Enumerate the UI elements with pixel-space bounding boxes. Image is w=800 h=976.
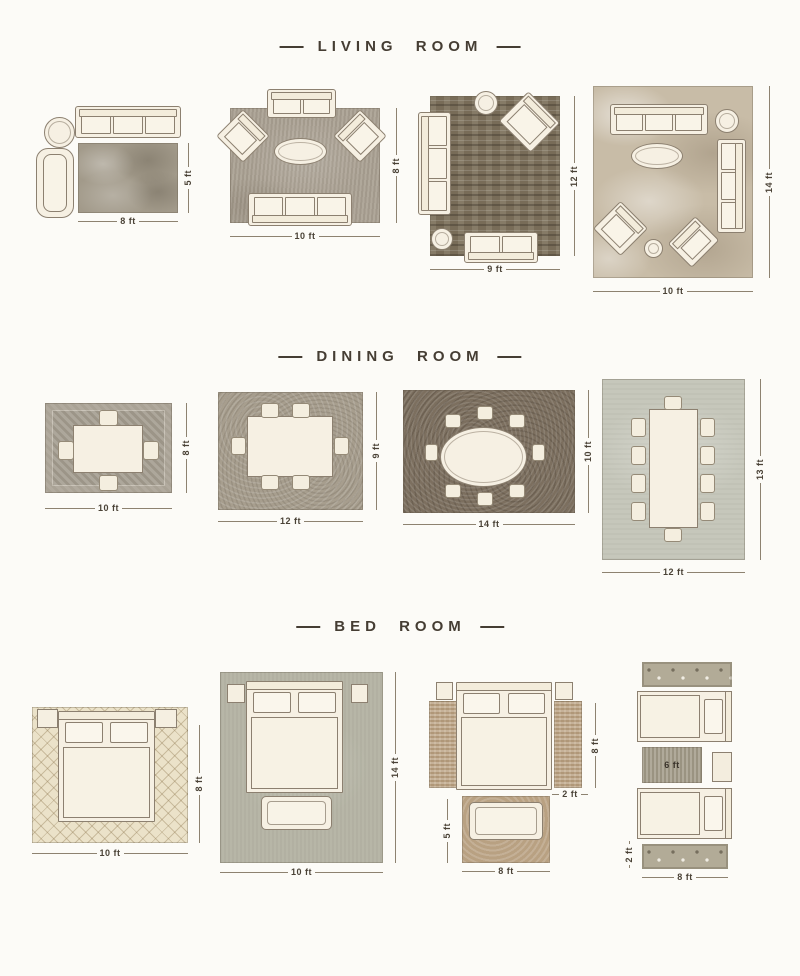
dim-height: 12 ft xyxy=(568,96,580,256)
dim-height: 5 ft xyxy=(182,143,194,213)
dining-chair xyxy=(664,396,682,410)
dim-label: 10 ft xyxy=(663,286,684,296)
bed xyxy=(456,682,552,790)
dim-label: 12 ft xyxy=(663,567,684,577)
dim-label: 5 ft xyxy=(183,170,193,186)
title-dash-left xyxy=(296,626,320,628)
side-table xyxy=(431,228,453,250)
dim-line xyxy=(552,794,559,795)
dim-foot-rug-height: 5 ft xyxy=(441,799,453,863)
dim-line xyxy=(395,781,396,863)
bench xyxy=(261,796,332,830)
dim-line xyxy=(593,291,660,292)
dim-label: 10 ft xyxy=(291,867,312,877)
dim-line xyxy=(315,872,383,873)
dim-line xyxy=(595,703,596,735)
dim-line xyxy=(122,508,172,509)
title-dash-left xyxy=(280,46,304,48)
dim-line xyxy=(595,756,596,788)
seat-cushion xyxy=(317,197,346,216)
seat-cushion xyxy=(616,114,643,131)
dim-runner-height: 8 ft xyxy=(589,703,601,788)
dim-width: 9 ft xyxy=(430,264,560,274)
dining-chair xyxy=(700,446,715,465)
dining-chair xyxy=(261,403,279,418)
dim-line xyxy=(230,236,292,237)
dim-width: 10 ft xyxy=(220,867,383,877)
seat-cushion xyxy=(273,99,301,114)
dim-line xyxy=(376,462,377,510)
dining-chair xyxy=(631,446,646,465)
dining-chair xyxy=(261,475,279,490)
dining-chair xyxy=(700,502,715,521)
bed xyxy=(246,681,343,793)
side-table xyxy=(474,91,498,115)
dim-line xyxy=(396,176,397,223)
dim-width: 10 ft xyxy=(593,286,753,296)
coffee-table xyxy=(631,143,683,169)
dim-label: 5 ft xyxy=(442,823,452,839)
dim-height: 13 ft xyxy=(754,379,766,560)
dim-label: 14 ft xyxy=(390,757,400,778)
dim-line xyxy=(769,196,770,279)
runner-rug xyxy=(642,662,732,687)
dim-label: 8 ft xyxy=(498,866,514,876)
seat-cushion xyxy=(303,99,331,114)
dim-line xyxy=(574,190,575,257)
dining-chair xyxy=(99,410,118,426)
dim-label: 2 ft xyxy=(624,847,634,863)
dim-label: 10 ft xyxy=(583,441,593,462)
living-room-title: LIVING ROOM xyxy=(280,38,521,55)
seat-cushion xyxy=(285,197,314,216)
dim-label: 2 ft xyxy=(562,789,578,799)
dim-line xyxy=(199,795,200,843)
sofa xyxy=(248,193,352,226)
nightstand xyxy=(555,682,573,700)
bed-room-title: BED ROOM xyxy=(296,618,504,635)
chaise-lounge xyxy=(36,148,74,218)
dim-line xyxy=(188,143,189,167)
dim-line xyxy=(687,572,745,573)
dim-line xyxy=(304,521,363,522)
seat-cushion xyxy=(721,172,736,199)
side-table xyxy=(715,109,739,133)
dim-width: 8 ft xyxy=(78,216,178,226)
rug-length-label: 6 ft xyxy=(664,760,680,770)
seat-cushion xyxy=(721,202,736,229)
sofa xyxy=(717,139,746,233)
seat-cushion xyxy=(645,114,672,131)
dim-width: 14 ft xyxy=(403,519,575,529)
dim-line xyxy=(506,269,560,270)
oval-dining-table xyxy=(440,427,527,487)
loveseat xyxy=(464,232,538,263)
pillow xyxy=(508,693,546,714)
dim-line xyxy=(581,794,588,795)
dim-label: 8 ft xyxy=(391,158,401,174)
sofa xyxy=(267,89,336,118)
dining-chair xyxy=(509,484,525,498)
dim-line xyxy=(220,872,288,873)
dim-width: 10 ft xyxy=(32,848,188,858)
seat-cushion xyxy=(470,236,500,253)
pillow xyxy=(704,699,723,734)
dining-table xyxy=(247,416,333,477)
dim-line xyxy=(588,465,589,513)
dim-width: 8 ft xyxy=(642,872,728,882)
dim-line xyxy=(396,108,397,155)
dining-chair xyxy=(631,502,646,521)
seat-cushion xyxy=(675,114,702,131)
runner-rug-between-beds: 6 ft xyxy=(642,747,702,783)
rug-size-guide: LIVING ROOM 5 ft 8 ft xyxy=(0,0,800,976)
dim-line xyxy=(403,524,476,525)
dim-line xyxy=(218,521,277,522)
dining-chair xyxy=(292,403,310,418)
dim-height: 8 ft xyxy=(390,108,402,223)
seat-cushion xyxy=(113,116,143,134)
dining-room-title: DINING ROOM xyxy=(278,348,521,365)
dim-height: 9 ft xyxy=(370,392,382,510)
dining-chair xyxy=(445,414,461,428)
dining-chair xyxy=(631,474,646,493)
pillow xyxy=(704,796,723,831)
dim-line xyxy=(430,269,484,270)
small-mat xyxy=(712,752,732,782)
pillow xyxy=(110,722,148,743)
dim-height: 8 ft xyxy=(193,725,205,843)
title-dash-right xyxy=(496,46,520,48)
dining-table xyxy=(73,425,143,473)
dining-chair xyxy=(99,475,118,491)
dim-label: 8 ft xyxy=(194,776,204,792)
dining-chair xyxy=(58,441,74,460)
dim-height: 10 ft xyxy=(582,390,594,513)
pillow xyxy=(463,693,501,714)
nightstand xyxy=(37,709,58,728)
nightstand xyxy=(351,684,368,703)
pillow xyxy=(298,692,336,713)
dim-line xyxy=(139,221,178,222)
dim-label: 10 ft xyxy=(100,848,121,858)
dim-width: 10 ft xyxy=(45,503,172,513)
dining-chair xyxy=(445,484,461,498)
dim-line xyxy=(199,725,200,773)
dim-line xyxy=(32,853,97,854)
bench xyxy=(469,802,543,840)
dim-label: 10 ft xyxy=(98,503,119,513)
title-dash-left xyxy=(278,356,302,358)
dining-chair xyxy=(292,475,310,490)
dim-line xyxy=(629,865,630,868)
dim-line xyxy=(376,392,377,440)
nightstand xyxy=(436,682,453,700)
nightstand xyxy=(227,684,245,703)
dim-label: 8 ft xyxy=(120,216,136,226)
dining-chair xyxy=(700,474,715,493)
seat-cushion xyxy=(428,181,447,211)
dim-line xyxy=(602,572,660,573)
seat-cushion xyxy=(721,143,736,170)
dim-line xyxy=(447,799,448,820)
seat-cushion xyxy=(81,116,111,134)
dining-chair xyxy=(509,414,525,428)
sofa xyxy=(610,104,708,135)
dim-label: 8 ft xyxy=(181,440,191,456)
seat-cushion xyxy=(428,148,447,178)
dim-label: 8 ft xyxy=(590,738,600,754)
dim-width: 12 ft xyxy=(218,516,363,526)
dim-line xyxy=(188,189,189,213)
dim-label: 12 ft xyxy=(569,166,579,187)
seat-cushion xyxy=(254,197,283,216)
dining-chair xyxy=(477,406,493,420)
runner-rug xyxy=(554,701,582,788)
coffee-table xyxy=(274,138,327,165)
dim-line xyxy=(462,871,495,872)
dim-label: 14 ft xyxy=(764,172,774,193)
dim-line xyxy=(186,403,187,437)
dining-chair xyxy=(334,437,349,455)
dining-table xyxy=(649,409,698,528)
dining-chair xyxy=(143,441,159,460)
dim-height: 14 ft xyxy=(389,672,401,863)
dim-line xyxy=(687,291,754,292)
dim-line xyxy=(124,853,189,854)
dim-width: 12 ft xyxy=(602,567,745,577)
seat-cushion xyxy=(145,116,175,134)
dim-line xyxy=(629,841,630,844)
dining-chair xyxy=(231,437,246,455)
dim-line xyxy=(588,390,589,438)
round-ottoman xyxy=(44,117,75,148)
dim-line xyxy=(78,221,117,222)
dim-label: 10 ft xyxy=(295,231,316,241)
dim-height: 14 ft xyxy=(763,86,775,278)
dim-line xyxy=(642,877,674,878)
runner-rug xyxy=(642,844,728,869)
dim-line xyxy=(517,871,550,872)
dim-runner-height: 2 ft xyxy=(623,841,635,868)
dim-label: 12 ft xyxy=(280,516,301,526)
dim-line xyxy=(696,877,728,878)
dim-line xyxy=(769,86,770,169)
dining-chair xyxy=(664,528,682,542)
dim-line xyxy=(503,524,576,525)
dim-line xyxy=(395,672,396,754)
pillow xyxy=(253,692,291,713)
runner-rug xyxy=(429,701,457,788)
dim-line xyxy=(45,508,95,509)
seat-cushion xyxy=(428,116,447,146)
dim-line xyxy=(186,459,187,493)
dining-chair xyxy=(700,418,715,437)
dim-label: 14 ft xyxy=(479,519,500,529)
dim-label: 13 ft xyxy=(755,459,765,480)
twin-bed xyxy=(637,788,732,839)
title-dash-right xyxy=(480,626,504,628)
dim-height: 8 ft xyxy=(180,403,192,493)
dim-width: 8 ft xyxy=(462,866,550,876)
dining-chair xyxy=(425,444,438,461)
dim-line xyxy=(447,842,448,863)
seat-cushion xyxy=(502,236,532,253)
dim-label: 9 ft xyxy=(371,443,381,459)
dim-line xyxy=(760,483,761,560)
dim-line xyxy=(760,379,761,456)
section-title-text: LIVING ROOM xyxy=(318,38,483,55)
dim-runner-width: 2 ft xyxy=(552,789,588,799)
dining-chair xyxy=(532,444,545,461)
nightstand xyxy=(155,709,177,728)
sofa xyxy=(418,112,451,215)
dining-chair xyxy=(631,418,646,437)
section-title-text: DINING ROOM xyxy=(316,348,483,365)
bed xyxy=(58,711,155,822)
dim-label: 8 ft xyxy=(677,872,693,882)
sofa xyxy=(75,106,181,138)
rug xyxy=(78,143,178,213)
title-dash-right xyxy=(498,356,522,358)
section-title-text: BED ROOM xyxy=(334,618,466,635)
dim-line xyxy=(319,236,381,237)
dim-width: 10 ft xyxy=(230,231,380,241)
dim-line xyxy=(574,96,575,163)
side-table xyxy=(644,239,663,258)
twin-bed xyxy=(637,691,732,742)
dining-chair xyxy=(477,492,493,506)
pillow xyxy=(65,722,103,743)
dim-label: 9 ft xyxy=(487,264,503,274)
